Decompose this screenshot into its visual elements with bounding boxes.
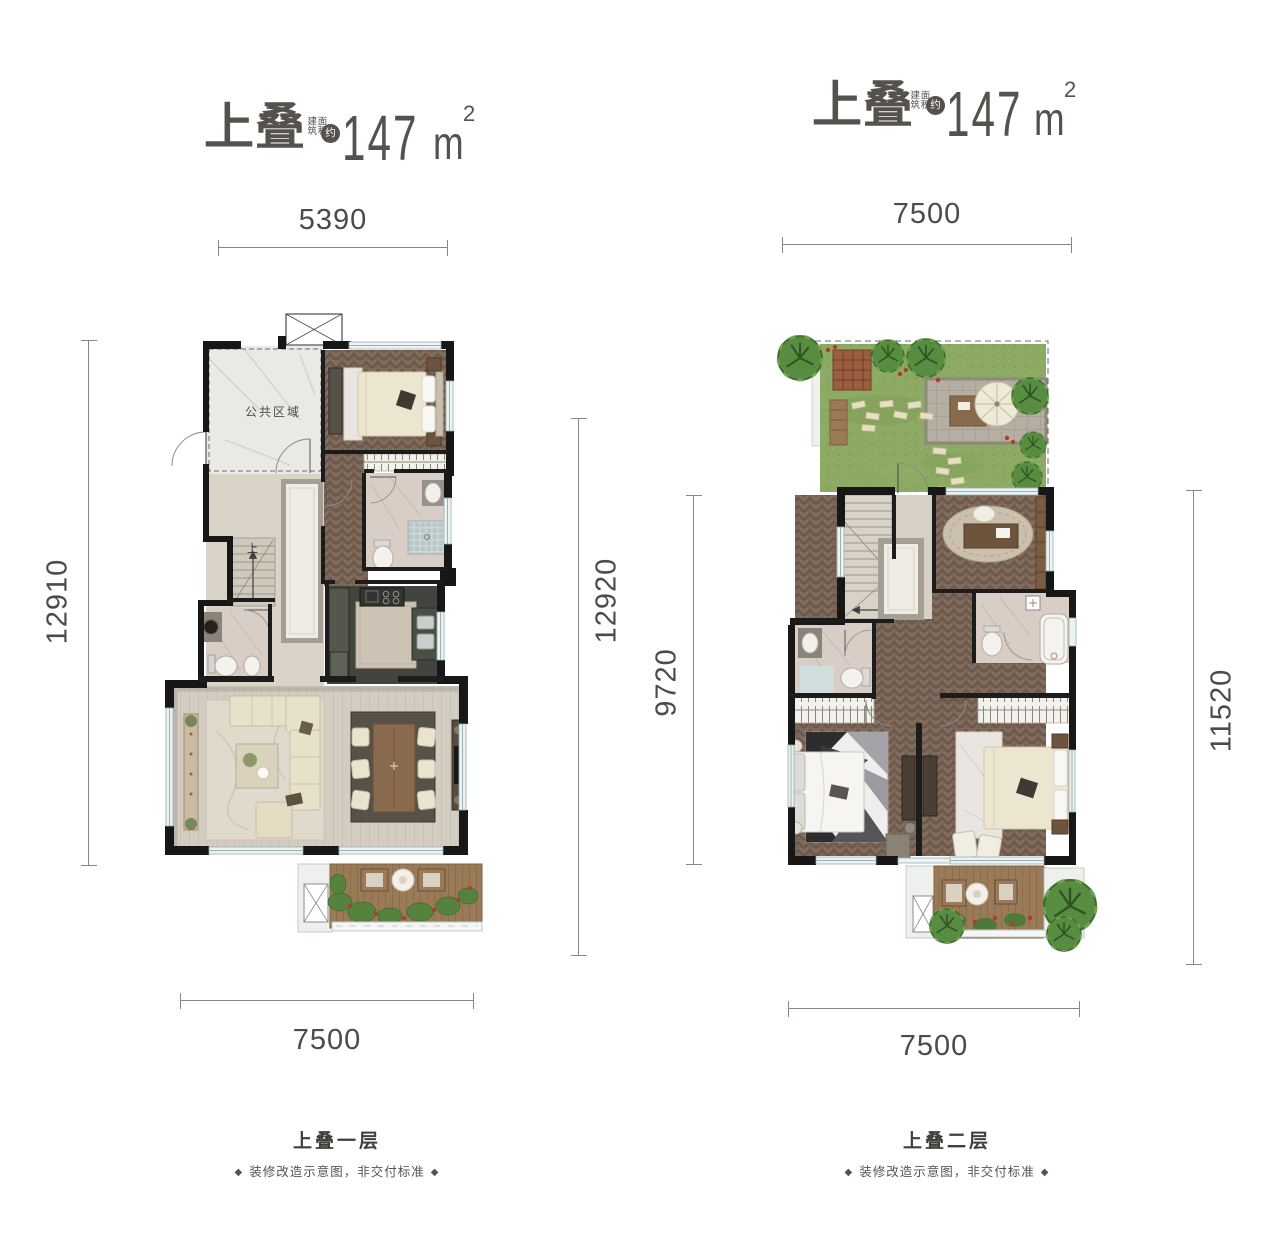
plan2-title-name: 上叠 — [812, 80, 914, 130]
living-dining-room — [172, 686, 465, 854]
stair-direction-label-up: 上 — [247, 542, 258, 555]
plan1-dim-top-line — [218, 247, 448, 248]
bathroom-right — [976, 593, 1069, 664]
plan2-dim-left-label: 9720 — [653, 613, 682, 753]
plan1-dim-right-label: 12920 — [593, 531, 622, 671]
plan2-title-area-unit: m — [1034, 96, 1065, 142]
bedroom1-closet — [364, 454, 448, 471]
plan2-dim-right-line — [1193, 490, 1194, 965]
plan2-dim-top-line — [782, 244, 1072, 245]
bullet-icon: ◆ — [1041, 1167, 1050, 1178]
plan1-caption: 上叠一层 ◆装修改造示意图，非交付标准◆ — [187, 1126, 487, 1180]
powder-room — [200, 608, 272, 682]
roof-garden — [778, 336, 1048, 494]
plan2-caption: 上叠二层 ◆装修改造示意图，非交付标准◆ — [797, 1126, 1097, 1180]
hall2-rug — [878, 538, 924, 620]
plan1-drawing: 公共区域 上 — [150, 300, 520, 960]
garden-bench — [830, 400, 847, 445]
plan1-title-name: 上叠 — [204, 102, 306, 152]
plan2-caption-title: 上叠二层 — [797, 1126, 1097, 1153]
pergola — [833, 350, 871, 390]
plan2-dim-right-label: 11520 — [1208, 641, 1237, 781]
plan1-dim-top-label: 5390 — [218, 206, 448, 235]
plan2-caption-note: ◆装修改造示意图，非交付标准◆ — [797, 1161, 1097, 1180]
plan2-dim-bottom-line — [788, 1008, 1080, 1009]
coffee-table — [236, 744, 278, 788]
plan2-title-area-value: 147 — [946, 82, 1022, 146]
public-area: 公共区域 — [206, 346, 324, 474]
kitchen — [327, 586, 443, 684]
plan1-caption-note: ◆装修改造示意图，非交付标准◆ — [187, 1161, 487, 1180]
bed2-left — [792, 752, 864, 832]
bathroom-left — [795, 623, 872, 695]
plan1-caption-title: 上叠一层 — [187, 1126, 487, 1153]
floorplan-sheet: 上叠 建筑面积 约 147 m 2 5390 12910 12920 7500 … — [0, 0, 1280, 1241]
balcony-first — [298, 864, 482, 932]
plan2-dim-left-line — [693, 495, 694, 865]
plan1-title-area-unit: m — [433, 120, 464, 166]
bullet-icon: ◆ — [431, 1167, 440, 1178]
bathroom-first — [366, 473, 448, 571]
bullet-icon: ◆ — [235, 1167, 244, 1178]
plan1-dim-left-line — [88, 340, 89, 866]
plan1-dim-left-label: 12910 — [44, 532, 73, 672]
plan2-title-approx-badge: 约 — [926, 96, 945, 115]
plan1-dim-right-line — [578, 418, 579, 956]
corridor-rug — [281, 479, 323, 643]
sideboard — [184, 714, 198, 830]
bed2-master — [984, 747, 1072, 829]
plan1-dim-bottom-line — [180, 1000, 474, 1001]
plan1-dim-bottom-label: 7500 — [180, 1026, 474, 1055]
plan2-title-area-exponent: 2 — [1064, 79, 1076, 101]
plan2-drawing: 下 — [760, 330, 1100, 990]
bullet-icon: ◆ — [845, 1167, 854, 1178]
plan2-dim-top-label: 7500 — [782, 200, 1072, 229]
dining-set — [351, 712, 436, 822]
hall1-floor — [324, 454, 368, 586]
umbrella-icon — [975, 382, 1019, 426]
plan2-dim-bottom-label: 7500 — [788, 1032, 1080, 1061]
plan1-title-area-value: 147 — [342, 106, 418, 170]
plan1-title-area-exponent: 2 — [463, 103, 475, 125]
public-area-label: 公共区域 — [245, 405, 301, 419]
staircase-up: 上 — [231, 538, 275, 606]
balcony-second — [906, 866, 1096, 951]
plan1-title-approx-badge: 约 — [321, 124, 340, 143]
